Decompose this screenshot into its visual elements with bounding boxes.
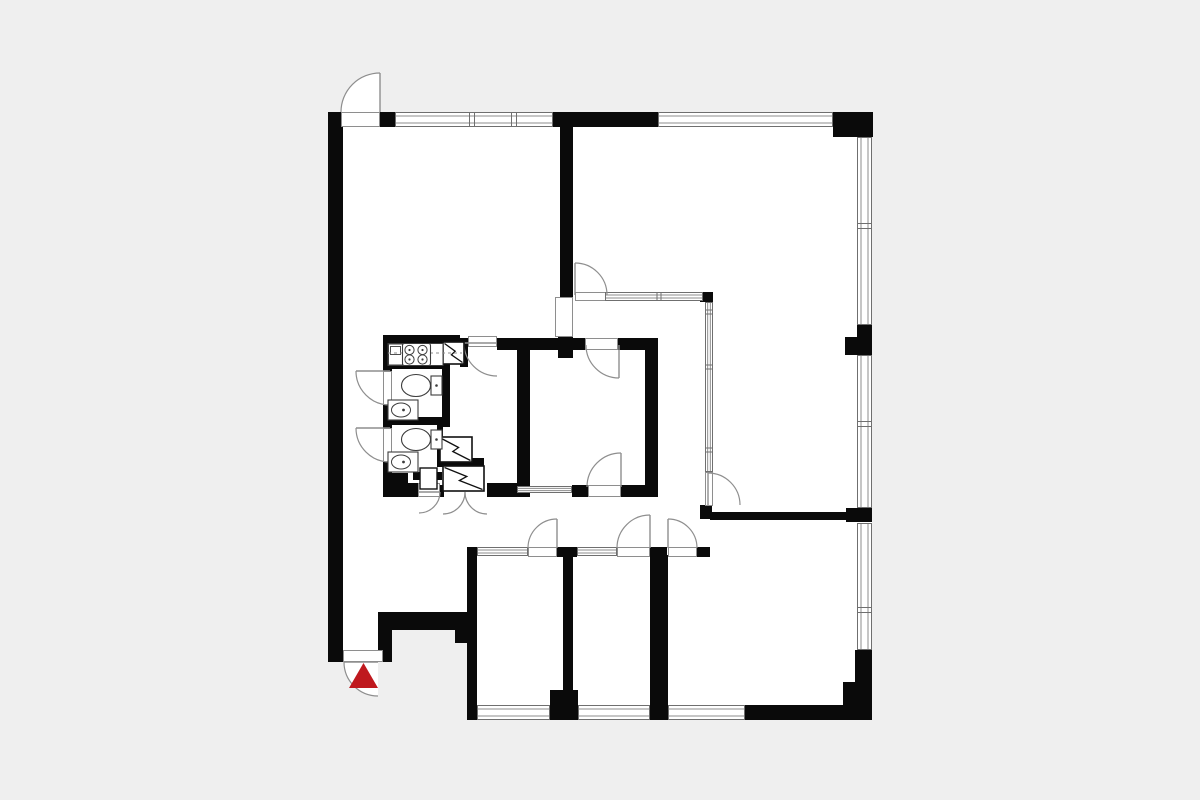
stove-burner-dot [408, 349, 410, 351]
wall-segment [467, 547, 477, 720]
window [857, 137, 872, 325]
window [668, 705, 745, 720]
toilet-icon [402, 375, 431, 397]
wall-segment [560, 127, 573, 297]
window [477, 705, 550, 720]
wall-segment [857, 325, 872, 355]
door-opening-frame [586, 339, 618, 350]
interior-glazing [605, 292, 703, 301]
wall-segment [383, 473, 408, 497]
wall-segment [700, 505, 712, 519]
interior-glazing [517, 486, 572, 493]
door-opening-frame [529, 548, 557, 557]
stove-burner-dot [408, 358, 410, 360]
stove-burner-dot [421, 349, 423, 351]
wall-segment [455, 623, 467, 643]
wall-segment [650, 547, 667, 557]
stove-burner-dot [421, 358, 423, 360]
wall-segment [380, 112, 395, 127]
wall-segment [843, 682, 857, 707]
wall-segment [328, 112, 343, 662]
wall-segment [650, 555, 668, 720]
wall-segment [442, 367, 450, 427]
interior-glazing [705, 302, 713, 472]
wall-segment [697, 547, 710, 557]
wall-segment [378, 612, 467, 630]
wall-segment [550, 690, 578, 720]
toilet-flush-dot [435, 384, 438, 387]
cabinet-icon [420, 468, 437, 489]
wall-segment [710, 512, 850, 520]
interior-glazing [477, 547, 528, 556]
door-opening-frame [618, 548, 650, 557]
floorplan-drawing [0, 0, 1200, 800]
door-opening-frame [576, 293, 607, 301]
door-opening-frame [669, 548, 697, 557]
wall-segment [645, 338, 658, 497]
door-opening-frame [556, 298, 573, 337]
wall-segment [563, 557, 573, 690]
door-opening-frame [469, 337, 497, 347]
wall-segment [557, 547, 577, 557]
wall-segment [517, 338, 530, 497]
window [857, 355, 872, 508]
window [658, 112, 833, 127]
wall-segment [745, 705, 872, 720]
door-opening-frame [342, 113, 380, 127]
toilet-flush-dot [435, 438, 438, 441]
wall-segment [621, 485, 658, 497]
wall-segment [572, 485, 588, 497]
door-opening-frame [344, 651, 383, 662]
door-opening-frame [589, 486, 621, 497]
wall-segment [497, 338, 517, 350]
wall-segment [833, 112, 873, 137]
wall-segment [553, 112, 658, 127]
door-opening-frame [706, 473, 713, 506]
toilet-icon [402, 429, 431, 451]
window [857, 523, 872, 650]
interior-glazing [577, 547, 617, 556]
sink-tap-dot [402, 409, 405, 412]
wall-segment [845, 337, 857, 355]
sink-tap-dot [402, 461, 405, 464]
window [578, 705, 650, 720]
wall-segment [408, 483, 418, 497]
wall-segment [487, 483, 517, 497]
floorplan-page [0, 0, 1200, 800]
